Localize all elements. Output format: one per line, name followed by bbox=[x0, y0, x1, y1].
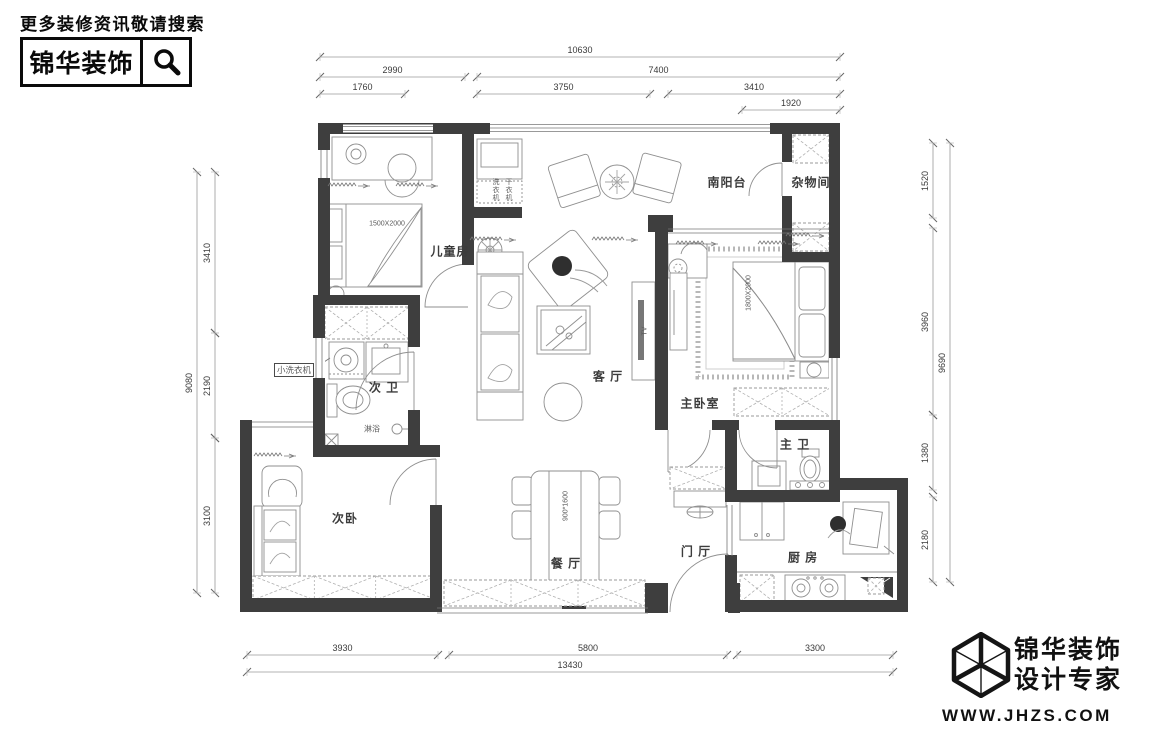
dim-bottom_5800: 5800 bbox=[578, 643, 598, 653]
bath1-sink-counter bbox=[790, 481, 830, 490]
dining-table-set bbox=[512, 471, 620, 595]
note-children-bed-size: 1500X2000 bbox=[369, 221, 405, 228]
room-label-bath2: 次 卫 bbox=[369, 379, 399, 396]
living-sofa bbox=[477, 252, 523, 420]
entry-door bbox=[670, 554, 728, 612]
note-washer: 洗衣机 bbox=[490, 178, 500, 202]
balcony-chair-left bbox=[548, 154, 602, 209]
dim-top_2990: 2990 bbox=[382, 65, 402, 75]
bath2-sink bbox=[366, 342, 408, 382]
dim-left_total: 9080 bbox=[184, 372, 194, 392]
room-label-master: 主卧室 bbox=[680, 395, 719, 412]
dim-top_1760: 1760 bbox=[352, 82, 372, 92]
living-pouf bbox=[544, 383, 582, 421]
master-tv-board bbox=[670, 273, 687, 350]
room-label-kitchen: 厨 房 bbox=[788, 549, 818, 566]
living-coffee-table bbox=[537, 306, 590, 354]
kitchen-stove bbox=[785, 575, 845, 602]
dim-right_1520: 1520 bbox=[920, 170, 930, 190]
dim-top_total: 10630 bbox=[567, 45, 592, 55]
room-label-entry: 门 厅 bbox=[681, 543, 711, 560]
dim-top_3750: 3750 bbox=[553, 82, 573, 92]
search-hint-text: 更多装修资讯敬请搜索 bbox=[20, 10, 205, 35]
kitchen-fridge bbox=[740, 502, 784, 540]
room-label-balcony: 南阳台 bbox=[707, 174, 746, 191]
note-tv: TV bbox=[642, 327, 649, 336]
living-reading-chair bbox=[526, 228, 610, 312]
footer-website-text: WWW.JHZS.COM bbox=[942, 706, 1152, 726]
balcony-table bbox=[600, 165, 634, 199]
note-small-washer: 小洗衣机 bbox=[274, 363, 314, 377]
dim-right_2180: 2180 bbox=[920, 529, 930, 549]
bath2-washer bbox=[329, 342, 364, 379]
dim-top_7400: 7400 bbox=[648, 65, 668, 75]
dim-right_1380: 1380 bbox=[920, 442, 930, 462]
dim-right_3960: 3960 bbox=[920, 311, 930, 331]
footer-logo: 锦华装饰 设计专家 WWW.JHZS.COM bbox=[942, 628, 1152, 726]
search-icon bbox=[140, 40, 189, 84]
cube-logo-icon bbox=[950, 632, 1012, 698]
balcony-chair-right bbox=[632, 153, 682, 204]
note-dryer: 干衣机 bbox=[503, 178, 513, 202]
bed2-sofa bbox=[254, 506, 300, 576]
bath1-toilet bbox=[800, 449, 820, 482]
dim-right_total: 9690 bbox=[937, 352, 947, 372]
dim-bottom_total: 13430 bbox=[557, 660, 582, 670]
room-label-bath1: 主 卫 bbox=[780, 436, 810, 453]
room-label-children: 儿童房 bbox=[430, 243, 469, 260]
bath2-shower-head bbox=[392, 424, 409, 434]
note-shower: 淋浴 bbox=[364, 424, 380, 435]
bed2-door bbox=[390, 459, 436, 505]
footer-tagline-text: 设计专家 bbox=[1014, 660, 1122, 696]
dim-top_1920: 1920 bbox=[781, 98, 801, 108]
floorplan-page: 更多装修资讯敬请搜索 锦华装饰 儿童房 南阳台 杂物间 次 卫 客 厅 主卧室 … bbox=[0, 0, 1158, 741]
dim-left_2190: 2190 bbox=[202, 375, 212, 395]
entry-console bbox=[674, 491, 726, 518]
dim-left_3410: 3410 bbox=[202, 242, 212, 262]
bed2-armchair bbox=[262, 466, 302, 508]
dim-left_3100: 3100 bbox=[202, 505, 212, 525]
room-label-storage: 杂物间 bbox=[791, 174, 830, 191]
dim-bottom_3930: 3930 bbox=[332, 643, 352, 653]
kitchen-sink bbox=[828, 502, 894, 554]
bath1-vanity bbox=[752, 461, 786, 491]
master-nightstand-bottom bbox=[800, 362, 829, 378]
header-logo: 锦华装饰 bbox=[20, 37, 192, 87]
note-master-bed-size: 1800X2000 bbox=[746, 275, 753, 311]
children-desk bbox=[332, 137, 432, 197]
furniture bbox=[254, 137, 897, 612]
room-label-dining: 餐 厅 bbox=[551, 555, 581, 572]
children-door bbox=[425, 264, 468, 307]
master-door bbox=[668, 430, 710, 472]
room-label-bed2: 次卧 bbox=[332, 510, 358, 527]
children-bed bbox=[323, 204, 422, 287]
dim-bottom_3300: 3300 bbox=[805, 643, 825, 653]
room-label-living: 客 厅 bbox=[593, 368, 623, 385]
note-dining-table-size: 900*1600 bbox=[563, 491, 570, 521]
storage-door bbox=[749, 163, 782, 196]
bath2-toilet bbox=[327, 384, 370, 417]
dim-top_3410: 3410 bbox=[744, 82, 764, 92]
header-brand-text: 锦华装饰 bbox=[23, 40, 140, 84]
